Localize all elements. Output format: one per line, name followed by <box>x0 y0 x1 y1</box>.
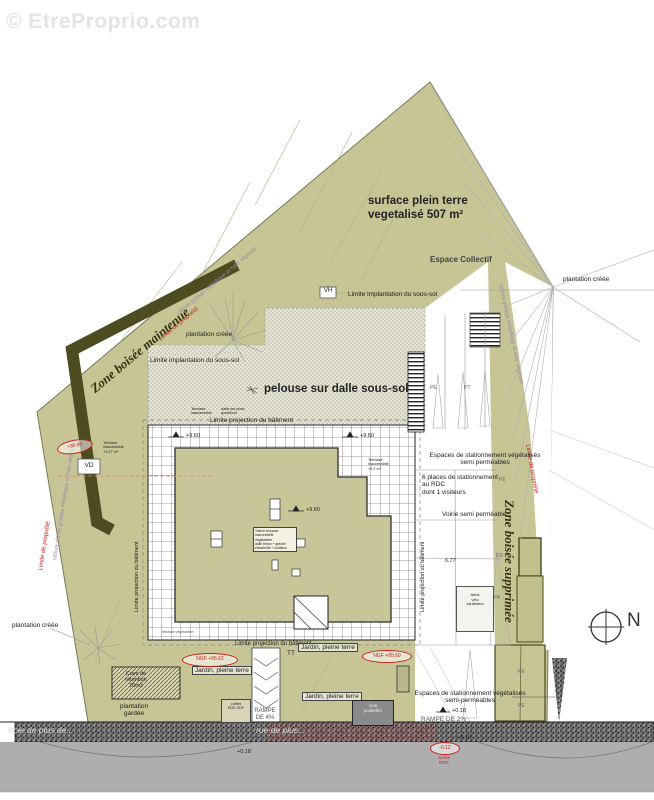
red-mark-3: NGF +95.60 <box>362 650 412 663</box>
level-1: +9.60 <box>186 433 200 439</box>
roof-note-box: Toiture terrasse inaccessible végétalisé… <box>253 527 297 552</box>
red-mark-2: NGF +95.63 <box>182 653 238 667</box>
coffret-box: coffret EDF-GDF <box>221 699 251 723</box>
plantation-creee-right: plantation créée <box>563 276 609 283</box>
abris-box: Abris vélo Jardinière <box>456 586 494 632</box>
rampe-2-label: RAMPE DE 2% <box>421 716 466 723</box>
dim-677: 6.77 <box>445 558 456 564</box>
level-3: +9.60 <box>306 507 320 513</box>
north-compass <box>588 609 624 645</box>
espace-collectif-label: Espace Collectif <box>430 255 492 264</box>
voirie-label: Voirie semi perméable <box>442 511 506 518</box>
places-rdc: 6 places de stationnement au RDC dont 1 … <box>422 474 498 496</box>
parking-code-pe-b1: PE <box>518 670 525 676</box>
utility-green-box <box>397 666 409 692</box>
vh-label: VH <box>321 288 335 295</box>
terrasse-right-note: Terrasse inaccessible +9.2 m² <box>368 458 389 471</box>
jardin-label-2: Jardin, pleine terre <box>298 643 358 652</box>
road <box>0 742 654 792</box>
parking-code-pt-top: PT <box>464 386 470 392</box>
street-name-left: Voie de plus de... <box>8 726 73 736</box>
surface-title-line2: vegetalisé 507 m² <box>368 209 463 221</box>
plantation-creee-bottom: plantation créée <box>12 622 58 629</box>
terrasse-top-note-2: dalle sur plots gravillons <box>221 407 244 416</box>
site-plan-drawing <box>0 0 654 800</box>
pelouse-label: pelouse sur dalle sous-sol <box>264 383 408 396</box>
level-018-a: +0.18 <box>452 708 466 714</box>
espaces-stationnement-bottom: Espaces de stationnement végétalisés sem… <box>414 690 526 705</box>
street-name-right: rue de plus... <box>256 726 305 736</box>
surface-title-line1: surface plein terre <box>368 195 468 207</box>
tt-label: TT <box>287 650 295 657</box>
parking-code-pe-mid: PE <box>499 478 506 484</box>
plantation-gardee-label: plantation gardée <box>112 703 156 718</box>
espaces-stationnement-top: Espaces de stationnement végétalisés sem… <box>424 452 546 467</box>
neighbour-lines <box>549 430 654 530</box>
parking-code-ds: DS <box>496 554 503 560</box>
stair-strip <box>408 352 424 432</box>
surface-title: surface plein terrevegetalisé 507 m² <box>368 194 468 223</box>
level-2: +9.60 <box>360 433 374 439</box>
site-plan: © EtreProprio.com surface plein terreveg… <box>0 0 654 800</box>
parking-code-pa: PA <box>494 596 500 602</box>
parking-code-pe-b2: PE <box>518 704 525 710</box>
level-018-b: +0.18 <box>457 735 471 741</box>
parking-code-pe-top: PE <box>430 386 437 392</box>
terrasse-left-note: Terrasse inaccessible +9.27 m² <box>103 441 124 454</box>
plantation-creee-left: plantation créée <box>186 331 232 338</box>
limite-projection-left: Limite projection du bâtiment <box>134 542 140 612</box>
red-mark-4b: accès RDC <box>430 755 458 765</box>
watermark: © EtreProprio.com <box>6 10 200 34</box>
compass-n-label: N <box>627 610 641 632</box>
jardin-label-1: Jardin, pleine terre <box>192 666 252 675</box>
hedge-wedge <box>552 658 567 722</box>
limite-projection-top: Limite projection du bâtiment <box>210 417 293 424</box>
local-box: local poubelles <box>352 700 394 726</box>
limite-sous-sol-top: Limite implantation du sous-sol <box>348 291 437 298</box>
limite-sous-sol-left: Limite implantation du sous-sol <box>150 357 239 364</box>
red-mark-4: -0.12 <box>430 742 460 755</box>
rampe-4-label: RAMPE DE 4% <box>250 708 280 722</box>
cuve-label: Cuve de rétention 20m3 <box>116 671 156 689</box>
terrasse-top-note: Terrasse inaccessible <box>191 407 212 416</box>
limite-projection-right: Limite projection du bâtiment <box>420 542 426 612</box>
vd-label: VD <box>79 462 99 469</box>
terrasse-note: terrasse végétalisée <box>162 630 193 634</box>
level-018-c: +0.18 <box>237 749 251 755</box>
